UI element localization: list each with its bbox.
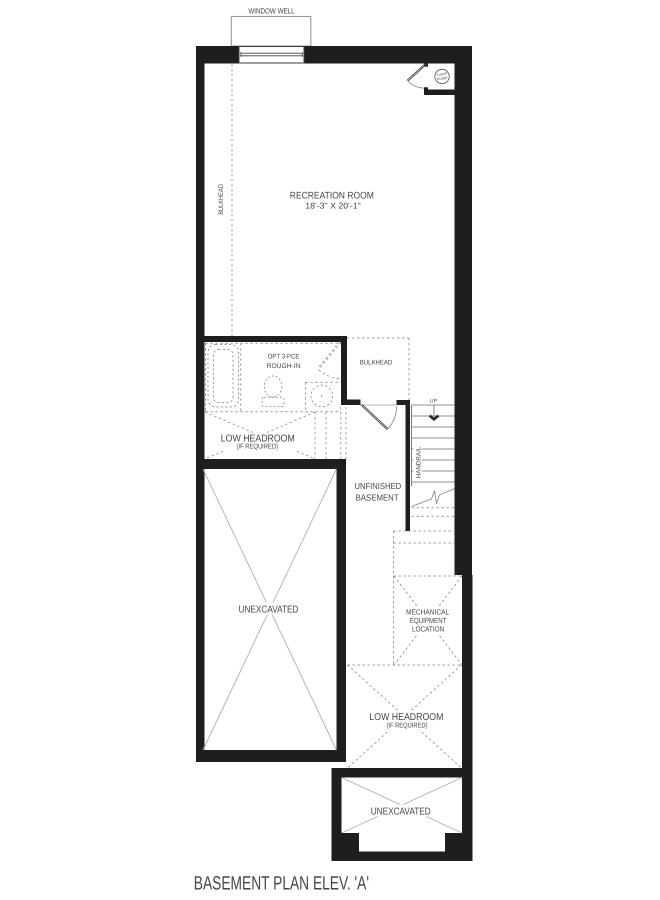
svg-text:PUMP: PUMP <box>437 76 449 82</box>
svg-text:(IF REQUIRED): (IF REQUIRED) <box>387 721 428 729</box>
svg-text:ROUGH-IN: ROUGH-IN <box>267 363 301 370</box>
svg-text:18'-3" X 20'-1": 18'-3" X 20'-1" <box>305 201 360 211</box>
svg-text:.....: ..... <box>319 399 324 403</box>
svg-text:WINDOW WELL: WINDOW WELL <box>248 6 294 15</box>
svg-text:UP: UP <box>430 399 438 405</box>
svg-text:BASEMENT: BASEMENT <box>356 492 400 502</box>
svg-text:UNEXCAVATED: UNEXCAVATED <box>371 807 431 818</box>
svg-text:OPT 3-PCE: OPT 3-PCE <box>268 354 300 361</box>
svg-text:UNEXCAVATED: UNEXCAVATED <box>239 605 299 616</box>
svg-text:BASEMENT PLAN ELEV. 'A': BASEMENT PLAN ELEV. 'A' <box>194 874 369 895</box>
svg-text:HANDRAIL: HANDRAIL <box>416 446 423 478</box>
svg-text:(IF REQUIRED): (IF REQUIRED) <box>237 442 279 450</box>
svg-text:LOCATION: LOCATION <box>412 624 444 633</box>
svg-text:UNFINISHED: UNFINISHED <box>354 481 401 491</box>
svg-text:BULKHEAD: BULKHEAD <box>360 359 392 366</box>
svg-text:BULKHEAD: BULKHEAD <box>218 184 225 215</box>
